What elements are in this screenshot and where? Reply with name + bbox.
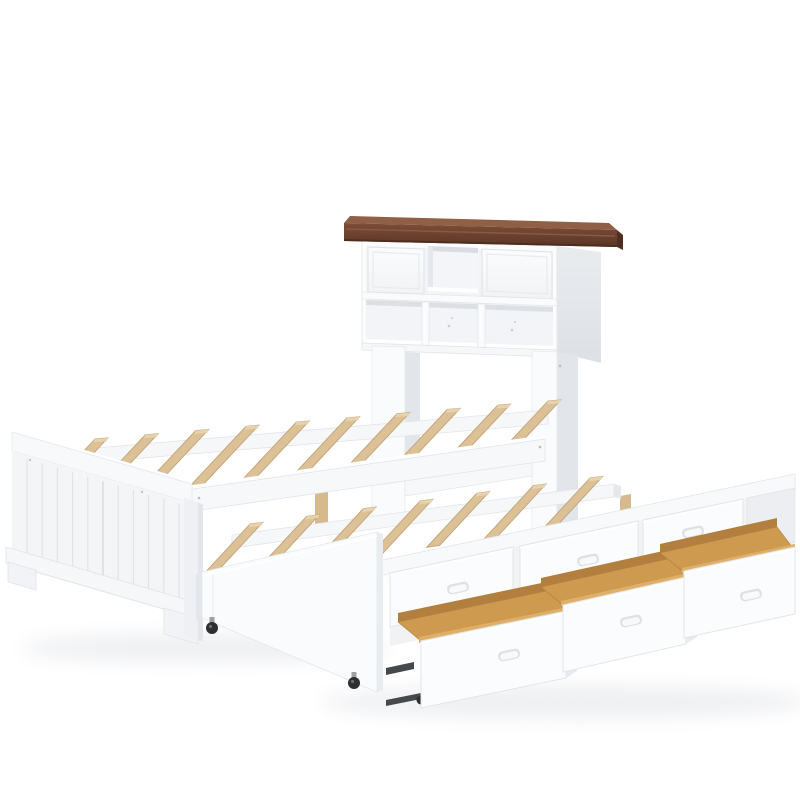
drawer-slide [386,662,426,706]
trundle-far-rail-endcap [614,484,621,499]
trundle-left-endcap [196,572,202,621]
footboard-post-side [198,502,203,641]
trundle-right-edge [377,532,383,692]
headboard-door-right [482,249,552,299]
headboard-side-panel [557,246,601,363]
crown-end-cap [617,230,623,250]
headboard-cubbies-bottom [366,300,553,350]
product-photo: White wooden captain's bed with bookcase… [0,0,800,800]
bed-product-illustration [0,0,800,800]
headboard-door-left [368,247,424,294]
footboard-corner-post [184,498,198,640]
headboard-cubby-top [428,246,478,293]
